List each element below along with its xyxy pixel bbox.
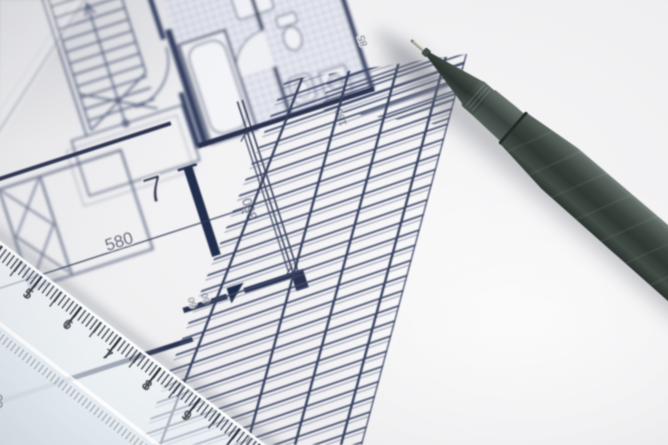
dim-label-85: 85: [356, 33, 370, 47]
sheet-corner: [0, 0, 86, 140]
dim-label-580: 580: [103, 228, 136, 255]
room-number-label: 7: [139, 166, 171, 211]
thick-wall-segment: [183, 166, 220, 257]
photo-architectural-plan: 7 580 350 180 85 60 60: [0, 0, 668, 445]
